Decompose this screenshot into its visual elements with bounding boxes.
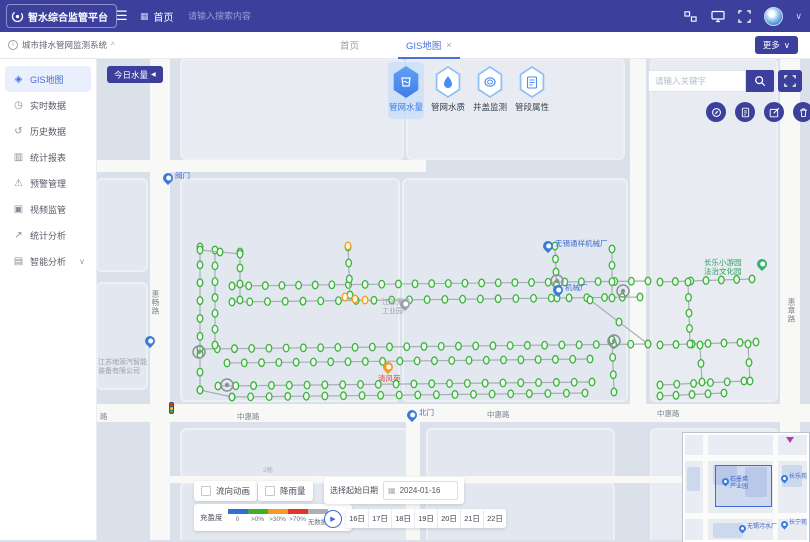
water-volume-icon — [392, 66, 420, 98]
breadcrumb[interactable]: ▦ 首页 — [140, 9, 174, 24]
pipe-node[interactable] — [429, 280, 435, 288]
delete-tool-button[interactable] — [793, 102, 810, 122]
pipe-node[interactable] — [283, 344, 289, 352]
pipe-node[interactable] — [318, 344, 324, 352]
pipe-node[interactable] — [687, 340, 693, 348]
pipe-node[interactable] — [747, 377, 753, 385]
pipe-node[interactable] — [389, 296, 395, 304]
pipe-node[interactable] — [197, 333, 203, 341]
day-selector: 16日 17日 18日 19日 20日 21日 22日 — [346, 509, 506, 528]
pipe-node[interactable] — [526, 390, 532, 398]
manhole-monitor-icon — [478, 68, 502, 96]
pipe-node[interactable] — [705, 390, 711, 398]
edit-tool-button[interactable] — [764, 102, 784, 122]
user-avatar[interactable] — [764, 7, 783, 26]
pipe-node[interactable] — [449, 357, 455, 365]
pipe-node[interactable] — [322, 392, 328, 400]
pipe-node[interactable] — [518, 379, 524, 387]
pipe-node[interactable] — [629, 277, 635, 285]
day-button-18[interactable]: 18日 — [392, 509, 415, 528]
pipe-node[interactable] — [312, 281, 318, 289]
pipe-node[interactable] — [404, 343, 410, 351]
pipe-node[interactable] — [265, 298, 271, 306]
pipe-node[interactable] — [746, 359, 752, 367]
pipe-node[interactable] — [478, 295, 484, 303]
pipe-node[interactable] — [424, 296, 430, 304]
pipe-node[interactable] — [293, 358, 299, 366]
pipe-node[interactable] — [737, 339, 743, 347]
pipe-node[interactable] — [673, 278, 679, 286]
pipe-node[interactable] — [397, 357, 403, 365]
minimap-pin — [780, 520, 790, 530]
pipe-node[interactable] — [336, 297, 342, 305]
pipe-node[interactable] — [212, 310, 218, 318]
pipe-node[interactable] — [566, 294, 572, 302]
pipe-node[interactable] — [229, 282, 235, 290]
tab-bar: i 城市排水管网监测系统 ^ 首页 GIS地图 × 更多 ∨ — [0, 32, 810, 59]
pipe-node[interactable] — [282, 298, 288, 306]
pipe-node[interactable] — [525, 342, 531, 350]
pipe-node[interactable] — [266, 393, 272, 401]
pipe-node[interactable] — [691, 380, 697, 388]
pipe-node[interactable] — [749, 275, 755, 283]
date-picker-label: 选择起始日期 — [330, 485, 378, 496]
smart-analysis-icon: ▤ — [13, 256, 24, 267]
pipe-node[interactable] — [697, 341, 703, 349]
day-button-22[interactable]: 22日 — [484, 509, 506, 528]
pipe-attribute-icon — [520, 68, 544, 96]
pipe-node[interactable] — [570, 355, 576, 363]
pipe-node[interactable] — [685, 278, 691, 286]
pipe-node[interactable] — [241, 359, 247, 367]
pipe-node[interactable] — [553, 255, 559, 263]
pipe-node[interactable] — [500, 379, 506, 387]
pipe-node[interactable] — [396, 391, 402, 399]
pipe-node[interactable] — [724, 378, 730, 386]
pipe-node[interactable] — [495, 295, 501, 303]
pipe-node[interactable] — [495, 279, 501, 287]
sidebar-item-realtime-data[interactable]: ◷ 实时数据 — [5, 92, 91, 118]
sidebar-item-stat-analysis[interactable]: ↗ 统计分析 — [5, 222, 91, 248]
pipe-node[interactable] — [587, 355, 593, 363]
info-icon: i — [8, 40, 18, 50]
pipe-node[interactable] — [609, 262, 615, 270]
pipe-node[interactable] — [212, 294, 218, 302]
rainfall-toggle[interactable]: 降雨量 — [258, 481, 313, 501]
header-search-input[interactable]: 请输入搜索内容 — [188, 9, 251, 22]
layer-tab-water-volume[interactable]: 管网水量 — [388, 62, 424, 119]
minimap-pin-label: 长乐苑 — [789, 474, 807, 481]
pipe-node[interactable] — [473, 342, 479, 350]
pipe-node[interactable] — [300, 297, 306, 305]
pipe-node[interactable] — [442, 296, 448, 304]
split-screen-icon[interactable] — [683, 9, 698, 24]
pipe-node[interactable] — [197, 368, 203, 376]
pipe-node[interactable] — [237, 264, 243, 272]
legend-color-0 — [228, 509, 248, 514]
pipe-node[interactable] — [610, 354, 616, 362]
alert-manage-icon: ⚠ — [13, 178, 24, 189]
pipe-node[interactable] — [262, 282, 268, 290]
pipe-node[interactable] — [674, 380, 680, 388]
pipe-node[interactable] — [212, 262, 218, 270]
pipe-node[interactable] — [479, 279, 485, 287]
search-button[interactable] — [746, 70, 774, 92]
pipe-node[interactable] — [734, 276, 740, 284]
pipe-node[interactable] — [286, 381, 292, 389]
sidebar-item-history-data[interactable]: ↺ 历史数据 — [5, 118, 91, 144]
pipe-node[interactable] — [322, 381, 328, 389]
pipe-node[interactable] — [229, 393, 235, 401]
pipe-node[interactable] — [501, 356, 507, 364]
pipe-node[interactable] — [554, 379, 560, 387]
pipe-node[interactable] — [657, 381, 663, 389]
pipe-node[interactable] — [359, 392, 365, 400]
pipe-node[interactable] — [429, 380, 435, 388]
minimap-pin-label: 无锡污水厂 — [747, 524, 777, 531]
pipe-node[interactable] — [721, 339, 727, 347]
legend-color-3 — [288, 509, 308, 514]
play-icon: ▶ — [330, 515, 335, 523]
date-picker-panel: 选择起始日期 ▦ 2024-01-16 — [324, 477, 464, 504]
map-search — [648, 70, 774, 92]
pipe-node[interactable] — [217, 248, 223, 256]
pipe-node[interactable] — [657, 392, 663, 400]
pipe-node[interactable] — [259, 359, 265, 367]
pipe-node[interactable] — [358, 381, 364, 389]
pipe-node[interactable] — [545, 278, 551, 286]
pipe-node[interactable] — [582, 389, 588, 397]
pipe-node[interactable] — [328, 358, 334, 366]
pipe-node[interactable] — [595, 278, 601, 286]
pipe-node[interactable] — [518, 356, 524, 364]
pipe-node[interactable] — [686, 309, 692, 317]
today-water-button[interactable]: 今日水量 ◀ — [107, 66, 163, 83]
pipe-node[interactable] — [212, 278, 218, 286]
pipe-node[interactable] — [247, 298, 253, 306]
pipe-node[interactable] — [248, 393, 254, 401]
measure-tool-button[interactable] — [706, 102, 726, 122]
pipe-node[interactable] — [414, 357, 420, 365]
pipe-node[interactable] — [611, 371, 617, 379]
pipe-node[interactable] — [673, 341, 679, 349]
pipe-node[interactable] — [564, 389, 570, 397]
pipe-node[interactable] — [371, 296, 377, 304]
pipe-node[interactable] — [197, 386, 203, 394]
monitor-station-marker[interactable] — [221, 379, 233, 391]
pipe-node[interactable] — [412, 280, 418, 288]
pipe-node[interactable] — [197, 279, 203, 287]
pipe-node[interactable] — [741, 377, 747, 385]
document-icon — [740, 107, 751, 118]
legend-title: 充盈度 — [200, 512, 223, 523]
layer-list-button[interactable] — [735, 102, 755, 122]
pipe-node[interactable] — [616, 318, 622, 326]
pipe-node[interactable] — [375, 380, 381, 388]
pipe-node[interactable] — [508, 390, 514, 398]
map-tools — [706, 102, 810, 122]
pipe-node[interactable] — [579, 278, 585, 286]
sidebar-menu: ◈ GIS地图 ◷ 实时数据 ↺ 历史数据 ▥ 统计报表 ⚠ 预警管理 ▣ 视频… — [0, 58, 97, 540]
pipe-node[interactable] — [304, 381, 310, 389]
pipe-node[interactable] — [531, 295, 537, 303]
pipe-node[interactable] — [352, 295, 358, 303]
pipe-node[interactable] — [237, 280, 243, 288]
pipe-node[interactable] — [609, 294, 615, 302]
minimap-pin-label: 长宁苑 — [789, 520, 807, 527]
pipe-node[interactable] — [745, 340, 751, 348]
pipe-node[interactable] — [311, 358, 317, 366]
day-button-19[interactable]: 19日 — [415, 509, 438, 528]
sidebar-item-report[interactable]: ▥ 统计报表 — [5, 144, 91, 170]
pipe-node[interactable] — [362, 281, 368, 289]
pipe-node[interactable] — [549, 294, 555, 302]
pipe-node[interactable] — [378, 392, 384, 400]
pipe-node[interactable] — [689, 391, 695, 399]
pipe-node[interactable] — [657, 341, 663, 349]
pipe-node[interactable] — [438, 343, 444, 351]
pipe-node[interactable] — [512, 279, 518, 287]
legend-scale: 0 >0% >30% >70% 无数据 — [228, 509, 328, 526]
pipe-node[interactable] — [237, 296, 243, 304]
checkbox-icon[interactable] — [201, 486, 211, 496]
grid-icon: ▦ — [140, 11, 149, 22]
monitor-icon[interactable] — [710, 9, 725, 24]
more-button[interactable]: 更多 ∨ — [755, 36, 798, 54]
pipe-node[interactable] — [529, 279, 535, 287]
legend-color-2 — [268, 509, 288, 514]
collapse-caret-icon: ^ — [111, 41, 115, 50]
pipe-node[interactable] — [246, 282, 252, 290]
layer-tab-pipe-attribute[interactable]: 管段属性 — [514, 62, 550, 119]
pipe-node[interactable] — [345, 242, 351, 250]
pipe-node[interactable] — [232, 345, 238, 353]
pipe-node[interactable] — [589, 378, 595, 386]
pipe-node[interactable] — [276, 359, 282, 367]
pipe-node[interactable] — [483, 356, 489, 364]
pipe-node[interactable] — [285, 393, 291, 401]
pipe-node[interactable] — [545, 390, 551, 398]
legend-color-1 — [248, 509, 268, 514]
pipe-node[interactable] — [587, 296, 593, 304]
pipe-node[interactable] — [466, 357, 472, 365]
map-layer-tabs: 管网水量 管网水质 井盖监测 管段属性 — [388, 62, 550, 119]
stat-analysis-icon: ↗ — [13, 230, 24, 241]
sidebar-item-gis-map[interactable]: ◈ GIS地图 — [5, 66, 91, 92]
sidebar-item-video-monitor[interactable]: ▣ 视频监管 — [5, 196, 91, 222]
edit-icon — [769, 107, 780, 118]
video-monitor-icon: ▣ — [13, 204, 24, 215]
pipe-node[interactable] — [296, 281, 302, 289]
pipe-node[interactable] — [447, 380, 453, 388]
header-actions: ∨ — [683, 0, 802, 32]
pipe-node[interactable] — [507, 342, 513, 350]
pipe-node[interactable] — [379, 280, 385, 288]
pipe-node[interactable] — [708, 379, 714, 387]
pipe-node[interactable] — [609, 278, 615, 286]
pipe-node[interactable] — [347, 275, 353, 283]
pipe-node[interactable] — [304, 392, 310, 400]
breadcrumb-home[interactable]: 首页 — [154, 9, 174, 24]
pipe-node[interactable] — [279, 282, 285, 290]
start-date-input[interactable]: ▦ 2024-01-16 — [383, 481, 458, 500]
pipe-node[interactable] — [465, 380, 471, 388]
pipe-node[interactable] — [699, 378, 705, 386]
pipe-node[interactable] — [637, 293, 643, 301]
sidebar-item-smart-analysis[interactable]: ▤ 智能分析 ∨ — [5, 248, 91, 274]
pipe-node[interactable] — [229, 298, 235, 306]
pipe-node[interactable] — [489, 390, 495, 398]
trash-icon — [798, 107, 809, 118]
layer-tab-water-quality[interactable]: 管网水质 — [430, 62, 466, 119]
pipe-node[interactable] — [269, 382, 275, 390]
pipe-node[interactable] — [421, 343, 427, 351]
pipe-node[interactable] — [462, 279, 468, 287]
flow-animation-toggle[interactable]: 流向动画 — [194, 481, 257, 501]
menu-toggle-icon[interactable]: ☰ — [116, 8, 128, 24]
minimap-pin-label: 石墨烯产业园 — [730, 477, 748, 491]
pipe-node[interactable] — [594, 341, 600, 349]
pipe-node[interactable] — [396, 280, 402, 288]
play-timeline-button[interactable]: ▶ — [324, 510, 342, 528]
pipe-node[interactable] — [482, 379, 488, 387]
pipe-node[interactable] — [393, 380, 399, 388]
more-caret-icon: ∨ — [784, 40, 790, 51]
pipe-node[interactable] — [513, 295, 519, 303]
pipe-node[interactable] — [657, 278, 663, 286]
pipe-node[interactable] — [602, 294, 608, 302]
pipe-node[interactable] — [340, 381, 346, 389]
gis-map-icon: ◈ — [13, 74, 24, 85]
expand-caret-icon: ∨ — [79, 257, 85, 266]
search-icon — [754, 75, 766, 87]
compass-icon — [711, 107, 722, 118]
pipe-node[interactable] — [628, 340, 634, 348]
pipe-node[interactable] — [687, 325, 693, 333]
pipe-node[interactable] — [411, 380, 417, 388]
pipe-node[interactable] — [237, 250, 243, 258]
pipe-node[interactable] — [415, 391, 421, 399]
pipe-node[interactable] — [251, 382, 257, 390]
day-button-21[interactable]: 21日 — [461, 509, 484, 528]
tab-close-icon[interactable]: × — [446, 40, 451, 50]
pipe-line — [232, 281, 648, 286]
history-data-icon: ↺ — [13, 126, 24, 137]
fullscreen-icon[interactable] — [737, 9, 752, 24]
pipe-node[interactable] — [456, 342, 462, 350]
pipe-node[interactable] — [571, 378, 577, 386]
pipe-node[interactable] — [387, 343, 393, 351]
checkbox-icon[interactable] — [265, 486, 275, 496]
pipe-node[interactable] — [233, 382, 239, 390]
pipe-node[interactable] — [611, 388, 617, 396]
system-title[interactable]: i 城市排水管网监测系统 ^ — [8, 39, 115, 51]
pipe-node[interactable] — [703, 277, 709, 285]
pipe-node[interactable] — [342, 293, 348, 301]
calendar-icon: ▦ — [388, 486, 396, 495]
pipe-node[interactable] — [446, 280, 452, 288]
pipe-node[interactable] — [197, 315, 203, 323]
pipe-node[interactable] — [609, 245, 615, 253]
pipe-node[interactable] — [698, 360, 704, 368]
pipe-node[interactable] — [753, 338, 759, 346]
day-button-17[interactable]: 17日 — [369, 509, 392, 528]
logo-swirl-icon — [11, 10, 24, 23]
pipe-node[interactable] — [719, 276, 725, 284]
pipe-line — [232, 297, 640, 302]
pipe-node[interactable] — [318, 297, 324, 305]
pipe-node[interactable] — [460, 295, 466, 303]
tab-home[interactable]: 首页 — [340, 32, 359, 57]
collapse-left-icon: ◀ — [151, 71, 156, 78]
map-search-input[interactable] — [648, 70, 746, 92]
map-fullscreen-button[interactable] — [778, 70, 802, 92]
pipe-node[interactable] — [341, 392, 347, 400]
pipe-node[interactable] — [197, 261, 203, 269]
realtime-data-icon: ◷ — [13, 100, 24, 111]
pipe-node[interactable] — [432, 357, 438, 365]
pipe-node[interactable] — [301, 344, 307, 352]
pipe-node[interactable] — [370, 343, 376, 351]
pipe-node[interactable] — [197, 297, 203, 305]
report-icon: ▥ — [13, 152, 24, 163]
pipe-node[interactable] — [434, 391, 440, 399]
pipe-node[interactable] — [542, 341, 548, 349]
top-header: 智水综合监管平台 ☰ ▦ 首页 请输入搜索内容 ∨ — [0, 0, 810, 32]
pipe-node[interactable] — [452, 391, 458, 399]
pipe-node[interactable] — [345, 358, 351, 366]
pipe-node[interactable] — [535, 356, 541, 364]
pipe-node[interactable] — [352, 343, 358, 351]
pipe-node[interactable] — [335, 344, 341, 352]
pipe-node[interactable] — [362, 358, 368, 366]
day-button-20[interactable]: 20日 — [438, 509, 461, 528]
pipe-node[interactable] — [686, 294, 692, 302]
sidebar-item-alert-manage[interactable]: ⚠ 预警管理 — [5, 170, 91, 196]
pipe-node[interactable] — [346, 259, 352, 267]
expand-icon — [784, 75, 796, 87]
pipe-node[interactable] — [721, 389, 727, 397]
layer-tab-manhole-monitor[interactable]: 井盖监测 — [472, 62, 508, 119]
pipe-node[interactable] — [224, 359, 230, 367]
pipe-node[interactable] — [362, 296, 368, 304]
overview-minimap[interactable]: 石墨烯产业园长乐苑无锡污水厂长宁苑 — [683, 433, 809, 542]
pipe-node[interactable] — [705, 340, 711, 348]
pipe-node[interactable] — [490, 342, 496, 350]
pipe-node[interactable] — [249, 345, 255, 353]
pipe-node[interactable] — [212, 325, 218, 333]
tab-gis-map[interactable]: GIS地图 × — [398, 32, 460, 59]
user-menu-caret-icon[interactable]: ∨ — [795, 11, 802, 22]
pipe-node[interactable] — [197, 246, 203, 254]
pipe-node[interactable] — [329, 281, 335, 289]
pipe-node[interactable] — [645, 277, 651, 285]
minimap-marker-icon — [786, 437, 794, 443]
pipe-node[interactable] — [553, 356, 559, 364]
pipe-node[interactable] — [215, 382, 221, 390]
day-button-16[interactable]: 16日 — [346, 509, 369, 528]
pipe-node[interactable] — [212, 341, 218, 349]
pipe-node[interactable] — [266, 344, 272, 352]
pipe-node[interactable] — [645, 340, 651, 348]
pipe-node[interactable] — [559, 341, 565, 349]
water-quality-icon — [436, 68, 460, 96]
pipe-node[interactable] — [471, 390, 477, 398]
pipe-node[interactable] — [536, 379, 542, 387]
pipe-node[interactable] — [673, 391, 679, 399]
app-logo: 智水综合监管平台 — [6, 4, 117, 28]
pipe-node[interactable] — [576, 341, 582, 349]
